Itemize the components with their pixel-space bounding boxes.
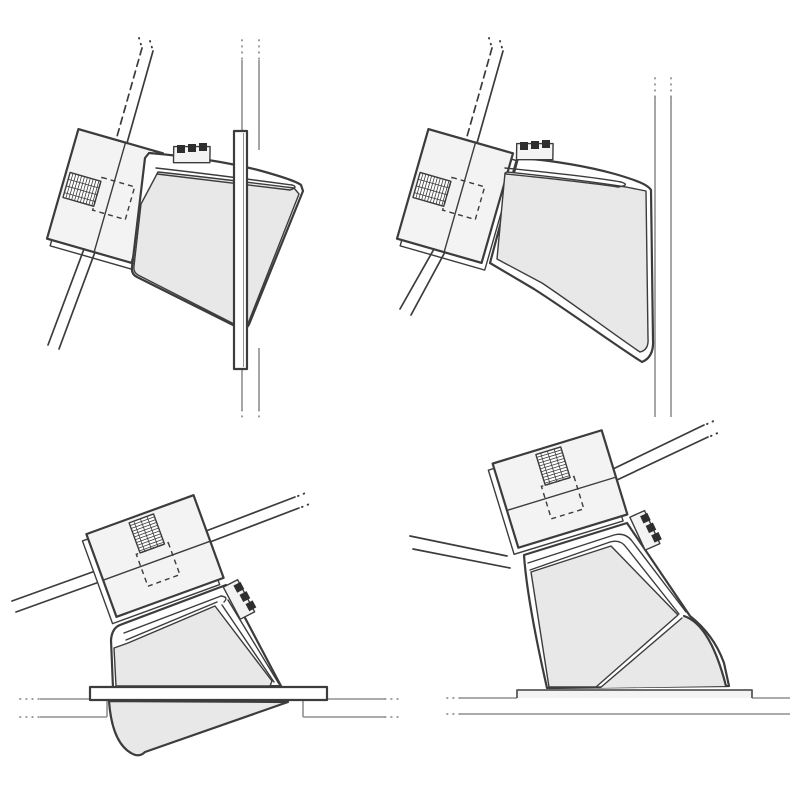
- diagram-page: [0, 0, 800, 800]
- top-plate: [90, 687, 327, 700]
- diagram-canvas: [0, 0, 800, 800]
- mounting-pad: [517, 690, 752, 698]
- backing-board: [234, 131, 247, 369]
